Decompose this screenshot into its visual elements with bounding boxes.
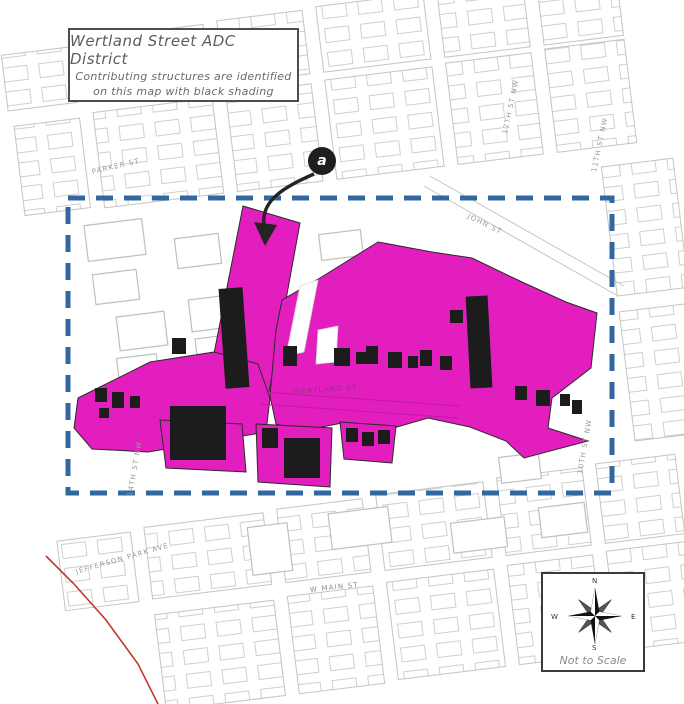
compass-south-label: S	[592, 644, 596, 652]
map-page: Wertland Street ADC District Contributin…	[0, 0, 684, 704]
map-title: Wertland Street ADC District	[70, 32, 297, 68]
compass-box: N E S W Not to Scale	[541, 572, 645, 672]
compass-rose-icon	[563, 584, 627, 648]
callout-marker-a: a	[308, 147, 336, 175]
title-box: Wertland Street ADC District Contributin…	[68, 28, 299, 102]
not-to-scale-label: Not to Scale	[543, 654, 643, 667]
map-subtitle-2: on this map with black shading	[93, 85, 274, 98]
compass-west-label: W	[551, 613, 558, 621]
map-subtitle-1: Contributing structures are identified	[75, 70, 291, 83]
compass-north-label: N	[592, 577, 597, 585]
compass-east-label: E	[631, 613, 635, 621]
